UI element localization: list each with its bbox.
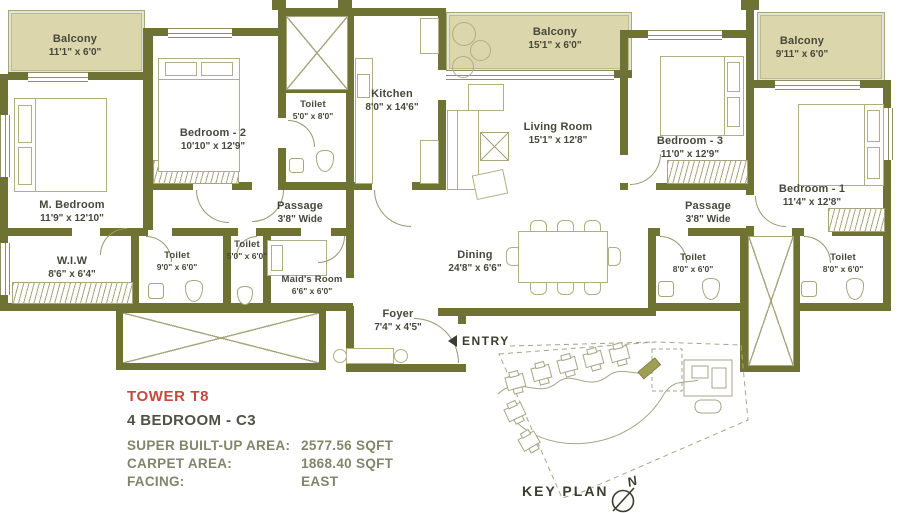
wall [438,8,446,70]
key-plan-label: KEY PLAN [522,483,609,499]
toilet-wc [702,278,720,300]
room-label-m-bedroom: M. Bedroom11'9" x 12'10" [10,199,134,225]
door-arc [288,120,315,147]
window [648,30,722,40]
wall [256,228,271,236]
console-table [346,348,394,364]
room-label-kitchen: Kitchen8'0" x 14'6" [352,88,432,114]
wall [620,183,628,190]
wall [746,226,754,236]
staircase-block [116,306,326,370]
balcony-chair [452,56,474,78]
wall [272,0,286,10]
dining-chair [584,282,601,295]
door-arc [374,190,411,227]
tower-title: TOWER T8 [127,388,209,405]
info-row-super-builtup: SUPER BUILT-UP AREA: 2577.56 SQFT [127,438,467,453]
info-label: CARPET AREA: [127,456,297,471]
window [28,72,88,82]
floor-plan: Balcony11'1" x 6'0" Bedroom - 210'10" x … [0,0,900,513]
wall [741,0,759,10]
door-arc [196,190,229,223]
wardrobe-hatch [667,160,748,184]
tower-t8-highlight [638,358,661,379]
wall [143,190,153,230]
key-plan: KEY PLAN N [448,338,890,513]
toilet-basin [801,281,817,297]
wardrobe-hatch [828,208,885,232]
room-label-bedroom-1: Bedroom - 111'4" x 12'8" [752,183,872,209]
stove [420,140,439,184]
room-label-balcony-mid: Balcony15'1" x 6'0" [493,26,617,52]
wall [656,183,746,190]
wall [354,8,438,16]
info-label: SUPER BUILT-UP AREA: [127,438,297,453]
room-label-bedroom-2: Bedroom - 210'10" x 12'9" [153,127,273,153]
toilet-wc [316,150,334,172]
window [883,108,893,160]
wall [466,308,656,316]
wall [271,228,301,236]
info-value: 1868.40 SQFT [301,456,393,471]
room-label-passage-right: Passage3'8" Wide [660,200,756,226]
info-value: EAST [301,474,338,489]
duct-shaft [286,16,348,90]
room-label-toilet-bed1a: Toilet8'0" x 6'0" [647,252,739,275]
dining-chair [608,247,621,266]
wall [8,72,30,80]
room-label-balcony-left: Balcony11'1" x 6'0" [13,33,137,59]
toilet-basin [148,283,164,299]
wardrobe-hatch [12,282,133,304]
window [775,80,860,90]
wall [286,8,346,16]
unit-type-title: 4 BEDROOM - C3 [127,412,256,429]
info-row-facing: FACING: EAST [127,474,467,489]
wall [792,228,804,236]
room-label-bedroom-3: Bedroom - 311'0" x 12'9" [630,135,750,161]
wall [0,74,8,115]
balcony-table [470,40,491,61]
info-label: FACING: [127,474,297,489]
bed [660,56,744,136]
north-label: N [625,472,639,489]
room-label-maids-room: Maid's Room6'6" x 6'0" [260,274,364,297]
wall [438,100,446,190]
wall [754,80,775,88]
room-label-balcony-right: Balcony9'11" x 6'0" [742,35,862,61]
refrigerator [420,18,439,54]
info-value: 2577.56 SQFT [301,438,393,453]
wall [625,30,648,38]
entry-label: ENTRY [462,334,510,348]
north-compass-icon [613,488,635,512]
wall [145,28,168,36]
stool [333,349,347,363]
wall [88,72,145,80]
stool [394,349,408,363]
bed [14,98,107,192]
info-row-carpet-area: CARPET AREA: 1868.40 SQFT [127,456,467,471]
wall [688,228,748,236]
wall [231,228,238,236]
wall [458,308,466,324]
room-label-toilet-master: Toilet9'0" x 6'0" [134,250,220,273]
toilet-wc [185,280,203,302]
window [0,243,10,295]
room-label-passage-left: Passage3'8" Wide [252,200,348,226]
wall [648,228,660,236]
armchair [472,169,508,200]
toilet-basin [658,281,674,297]
window [168,28,232,38]
wall [143,76,153,190]
room-label-toilet-bed1b: Toilet8'0" x 6'0" [800,252,886,275]
entry-arrow-icon [448,335,457,347]
wall [138,228,148,236]
wall [860,80,891,88]
dining-chair [557,282,574,295]
wall [172,228,223,236]
wall [278,182,346,190]
toilet-basin [289,158,304,173]
room-label-foyer: Foyer7'4" x 4'5" [350,308,446,334]
bed [798,104,884,186]
wall [614,70,632,78]
wall [8,228,72,236]
wall [648,303,748,311]
wall [620,30,628,155]
room-label-living: Living Room15'1" x 12'8" [495,121,621,147]
room-label-wiw: W.I.W8'6" x 6'4" [10,255,134,281]
entry-marker: ENTRY [448,334,510,348]
room-label-dining: Dining24'8" x 6'6" [425,249,525,275]
window [0,115,10,177]
toilet-wc [846,278,864,300]
room-label-toilet-kitchen: Toilet5'0" x 8'0" [279,99,347,122]
armchair [468,84,504,111]
wall [0,177,8,243]
dining-chair [530,282,547,295]
bed [158,58,240,172]
door-arc [318,236,345,263]
wall [792,303,891,311]
room-label-toilet-maid: Toilet5'0" x 6'0" [220,239,274,262]
dining-table [518,231,608,283]
